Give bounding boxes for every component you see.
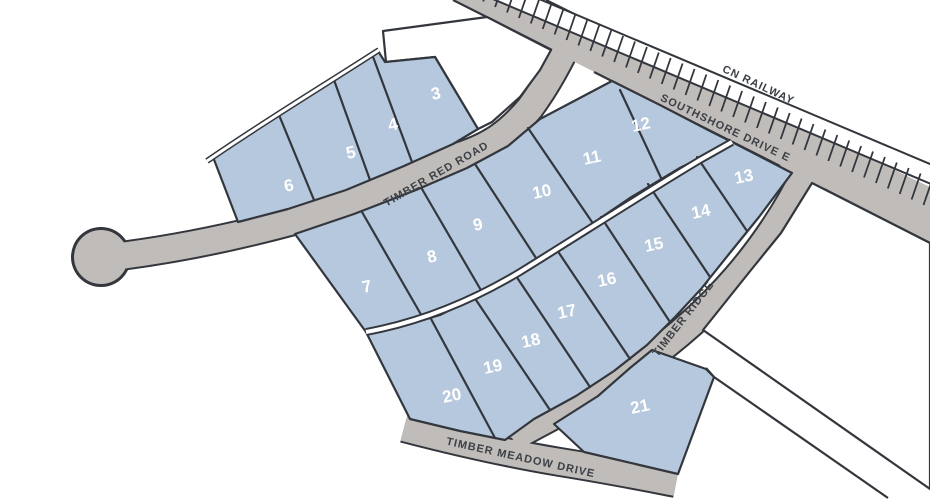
lot-number-17: 17 [556, 300, 578, 323]
lot-number-20: 20 [441, 384, 463, 407]
lot-number-13: 13 [733, 165, 755, 188]
plat-map-svg: CN RAILWAY SOUTHSHORE DRIVE E TIMBER RED… [0, 0, 930, 500]
lot-number-19: 19 [482, 355, 504, 378]
lot-number-18: 18 [520, 329, 542, 352]
lot-number-21: 21 [629, 395, 651, 418]
lot-number-16: 16 [596, 268, 618, 291]
cul-de-sac-surface[interactable] [74, 230, 128, 284]
lot-number-15: 15 [643, 233, 665, 256]
lot-number-10: 10 [531, 180, 553, 203]
plat-map-canvas: CN RAILWAY SOUTHSHORE DRIVE E TIMBER RED… [0, 0, 930, 500]
lot-number-12: 12 [630, 113, 652, 136]
lot-number-11: 11 [581, 146, 603, 168]
